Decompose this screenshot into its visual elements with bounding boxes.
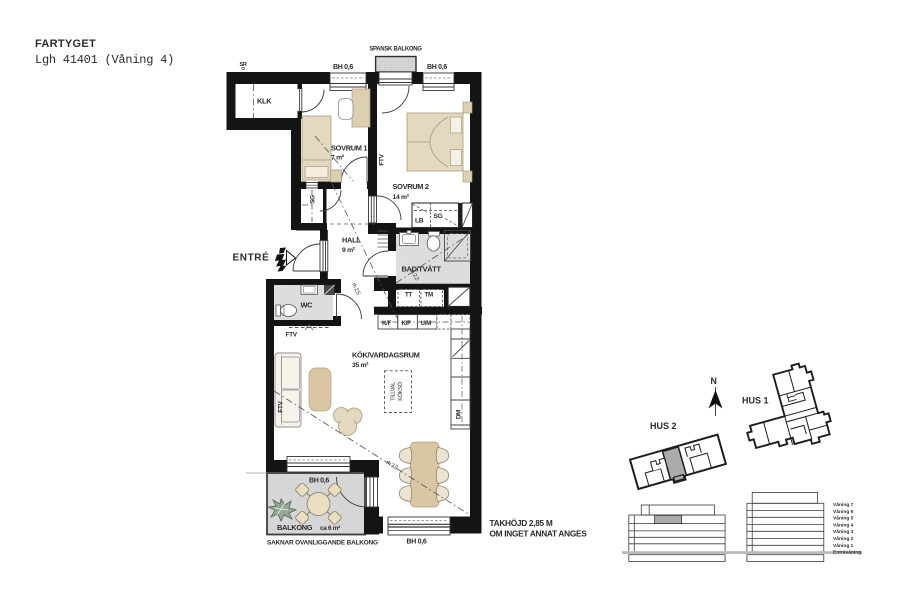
svg-text:SG: SG [310, 195, 317, 204]
svg-text:Lgh 41401 (Våning 4): Lgh 41401 (Våning 4) [35, 53, 174, 67]
svg-text:Våning 6: Våning 6 [833, 508, 854, 515]
svg-text:TT: TT [405, 292, 412, 299]
svg-text:FTV: FTV [278, 400, 285, 412]
svg-text:FARTYGET: FARTYGET [35, 38, 96, 50]
svg-text:ca 6 m²: ca 6 m² [320, 525, 340, 532]
svg-text:TAKHÖJD 2,85 M: TAKHÖJD 2,85 M [490, 518, 553, 528]
svg-text:BALKONG: BALKONG [277, 523, 313, 532]
svg-text:BH 0,6: BH 0,6 [427, 64, 447, 71]
svg-text:KÖKSÖ: KÖKSÖ [397, 381, 404, 400]
svg-text:Våning 2: Våning 2 [833, 535, 854, 542]
svg-text:N: N [711, 376, 717, 386]
svg-text:K/F: K/F [382, 320, 392, 327]
svg-text:BH 0,6: BH 0,6 [309, 478, 329, 485]
svg-text:Våning 1: Våning 1 [833, 542, 854, 549]
svg-text:7 m²: 7 m² [331, 155, 345, 162]
svg-text:TM: TM [425, 292, 433, 299]
svg-text:14 m²: 14 m² [393, 194, 410, 201]
svg-text:WC: WC [301, 301, 314, 310]
svg-text:HUS 2: HUS 2 [650, 421, 677, 431]
svg-text:HALL: HALL [342, 236, 361, 245]
svg-text:Våning 4: Våning 4 [833, 521, 854, 528]
svg-text:LB: LB [415, 218, 424, 225]
svg-text:KÖK/VARDAGSRUM: KÖK/VARDAGSRUM [352, 351, 420, 360]
svg-text:K/F: K/F [402, 320, 412, 327]
svg-text:KLK: KLK [257, 97, 272, 106]
svg-text:BAD/TVÄTT: BAD/TVÄTT [402, 265, 442, 274]
svg-text:BH 0,6: BH 0,6 [407, 539, 427, 546]
svg-text:rh 2,5: rh 2,5 [385, 460, 399, 472]
svg-text:Våning 3: Våning 3 [833, 528, 854, 535]
svg-text:OM INGET ANNAT ANGES: OM INGET ANNAT ANGES [490, 529, 588, 539]
svg-text:FTV: FTV [379, 153, 386, 165]
svg-text:DM: DM [456, 410, 463, 419]
svg-text:U/M: U/M [421, 320, 432, 327]
svg-text:SOVRUM 1: SOVRUM 1 [331, 144, 367, 153]
svg-text:TILLVAL: TILLVAL [391, 382, 397, 401]
svg-text:SAKNAR OVANLIGGANDE BALKONG: SAKNAR OVANLIGGANDE BALKONG [267, 540, 378, 547]
svg-text:SG: SG [434, 213, 443, 220]
svg-text:9 m²: 9 m² [342, 247, 356, 254]
svg-text:35 m²: 35 m² [352, 362, 369, 369]
svg-text:ENTRÉ: ENTRÉ [233, 251, 270, 264]
svg-text:Våning 7: Våning 7 [833, 501, 854, 508]
svg-text:BH 0,6: BH 0,6 [333, 64, 353, 71]
svg-text:Entrévåning: Entrévåning [833, 549, 861, 556]
svg-text:FTV: FTV [286, 332, 298, 339]
svg-text:SOVRUM 2: SOVRUM 2 [393, 182, 429, 191]
svg-text:Våning 5: Våning 5 [833, 515, 854, 522]
svg-text:SPANSK BALKONG: SPANSK BALKONG [369, 47, 422, 53]
svg-text:rh 2,5: rh 2,5 [350, 282, 361, 296]
svg-text:HUS 1: HUS 1 [742, 396, 769, 406]
